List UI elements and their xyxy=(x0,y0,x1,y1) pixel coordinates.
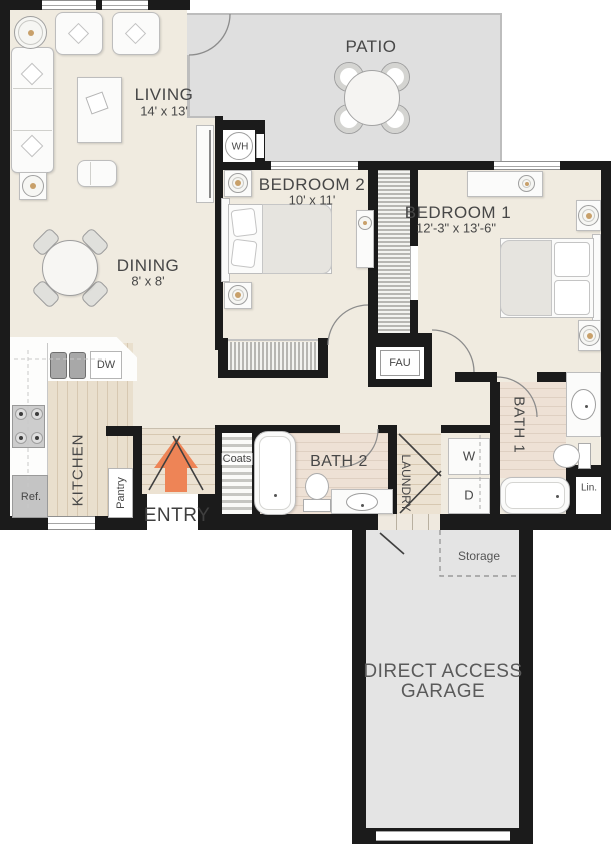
burner-2 xyxy=(31,408,43,420)
side-table-top xyxy=(14,16,47,49)
bed1-closet-door xyxy=(410,246,418,300)
window-bedroom1 xyxy=(494,161,560,170)
storage-title: Storage xyxy=(458,549,500,563)
kitchen-title: KITCHEN xyxy=(70,434,87,507)
bath1-sink-drain xyxy=(585,405,588,408)
garage-wall-right xyxy=(519,530,533,844)
bath1-sink xyxy=(571,389,596,420)
coats-left xyxy=(215,433,222,514)
refrigerator-label: Ref. xyxy=(21,491,41,503)
bedroom1-dims: 12'-3" x 13'-6" xyxy=(416,221,496,236)
patio-title: PATIO xyxy=(346,37,397,57)
burner-4 xyxy=(31,432,43,444)
bath2-toilet-bowl xyxy=(305,473,329,500)
bed1-closet-interior xyxy=(378,170,410,333)
sofa-cushion-line-2 xyxy=(13,130,52,131)
bath1-title: BATH 1 xyxy=(511,396,528,453)
coats-interior xyxy=(222,433,252,514)
window-kitchen xyxy=(48,516,95,530)
bed2-closet-doorline xyxy=(228,339,318,341)
dryer-label: D xyxy=(464,488,473,503)
bed2-closet-interior xyxy=(228,342,318,370)
laundry-title: LAUNDRY xyxy=(399,454,413,511)
window-living-2 xyxy=(102,0,148,10)
wall-laundry-top-left xyxy=(378,425,397,433)
bed2-pillow-1 xyxy=(230,208,257,238)
fau-label: FAU xyxy=(389,357,410,369)
bath2-sink xyxy=(346,493,378,511)
ottoman xyxy=(77,160,117,187)
window-living-1 xyxy=(42,0,96,10)
living-title: LIVING xyxy=(135,85,194,105)
wall-pantry-top xyxy=(106,426,142,436)
bath2-title: BATH 2 xyxy=(310,453,368,471)
wall-bottom-right xyxy=(440,514,611,530)
bed2-dresser-knob xyxy=(358,216,372,230)
burner-3 xyxy=(15,432,27,444)
garage-title-line1: DIRECT ACCESS xyxy=(363,661,522,683)
bed2-blanket xyxy=(262,204,332,274)
dining-table xyxy=(42,240,98,296)
wall-top-a xyxy=(0,0,42,10)
living-dims: 14' x 13' xyxy=(140,104,188,119)
dining-dims: 8' x 8' xyxy=(131,274,164,289)
bath2-sink-drain xyxy=(361,504,364,507)
patio-fence-right xyxy=(500,13,502,161)
bed1-lamp-1 xyxy=(578,205,599,226)
patio-table xyxy=(344,70,400,126)
kitchen-sink-basin-1 xyxy=(50,352,67,379)
threshold-step-2 xyxy=(412,514,413,530)
bed2-closet-bottom xyxy=(218,370,328,378)
fau-bottom xyxy=(368,379,432,387)
ottoman-line xyxy=(90,162,91,185)
bath1-tub xyxy=(500,477,570,514)
bed2-lamp-1 xyxy=(228,173,248,193)
wall-bottom-mid xyxy=(203,514,378,530)
washer-label: W xyxy=(463,449,475,464)
bedroom2-dims: 10' x 11' xyxy=(289,193,336,208)
bed1-pillow-1 xyxy=(554,242,590,277)
patio-fence-top xyxy=(187,13,502,15)
coats-label: Coats xyxy=(222,453,253,465)
burner-1 xyxy=(15,408,27,420)
garage-wall-left xyxy=(352,530,366,844)
wall-bottom-kitchen-a xyxy=(0,516,48,530)
entry-arrow-head xyxy=(154,438,198,468)
tv-console xyxy=(196,125,214,203)
fau-top-wall xyxy=(368,333,432,347)
entry-arrow-shaft xyxy=(165,468,187,492)
water-heater-label: WH xyxy=(232,142,249,153)
window-bedroom2 xyxy=(271,161,358,170)
tv-screen xyxy=(209,130,211,198)
sofa-cushion-line-1 xyxy=(13,88,52,89)
wall-top-c xyxy=(148,0,190,10)
threshold-step-3 xyxy=(428,514,429,530)
bath2-tub xyxy=(254,431,296,515)
wall-right xyxy=(601,161,611,530)
bath1-toilet-bowl xyxy=(553,444,580,468)
wh-closet-door xyxy=(256,134,264,158)
wall-bottom-kitchen-b xyxy=(95,516,133,530)
dishwasher-label: DW xyxy=(97,359,115,371)
bath2-toilet-tank xyxy=(303,499,331,512)
pantry-label: Pantry xyxy=(115,477,127,509)
side-table-bottom xyxy=(22,175,44,197)
bed2-lamp-2 xyxy=(228,285,248,305)
bed1-lamp-2 xyxy=(579,325,600,346)
linen-label: Lin. xyxy=(581,483,597,494)
floor-plan: WH FAU Coats Lin. xyxy=(0,0,611,844)
patio-fence-bottomleft xyxy=(187,116,217,118)
garage-title-line2: GARAGE xyxy=(401,681,485,703)
kitchen-sink-basin-2 xyxy=(69,352,86,379)
wall-left xyxy=(0,0,10,530)
wh-closet-top xyxy=(215,120,265,130)
bath1-door-gap xyxy=(497,372,537,382)
wall-laundry-bath1 xyxy=(490,382,500,514)
garage-threshold xyxy=(378,514,440,530)
bed2-pillow-2 xyxy=(230,239,257,269)
bed1-blanket xyxy=(500,240,552,316)
threshold-step-1 xyxy=(396,514,397,530)
bed1-dresser-knob xyxy=(518,175,535,192)
garage-door xyxy=(376,831,510,841)
entry-title: ENTRY xyxy=(144,505,211,527)
bed1-pillow-2 xyxy=(554,280,590,315)
